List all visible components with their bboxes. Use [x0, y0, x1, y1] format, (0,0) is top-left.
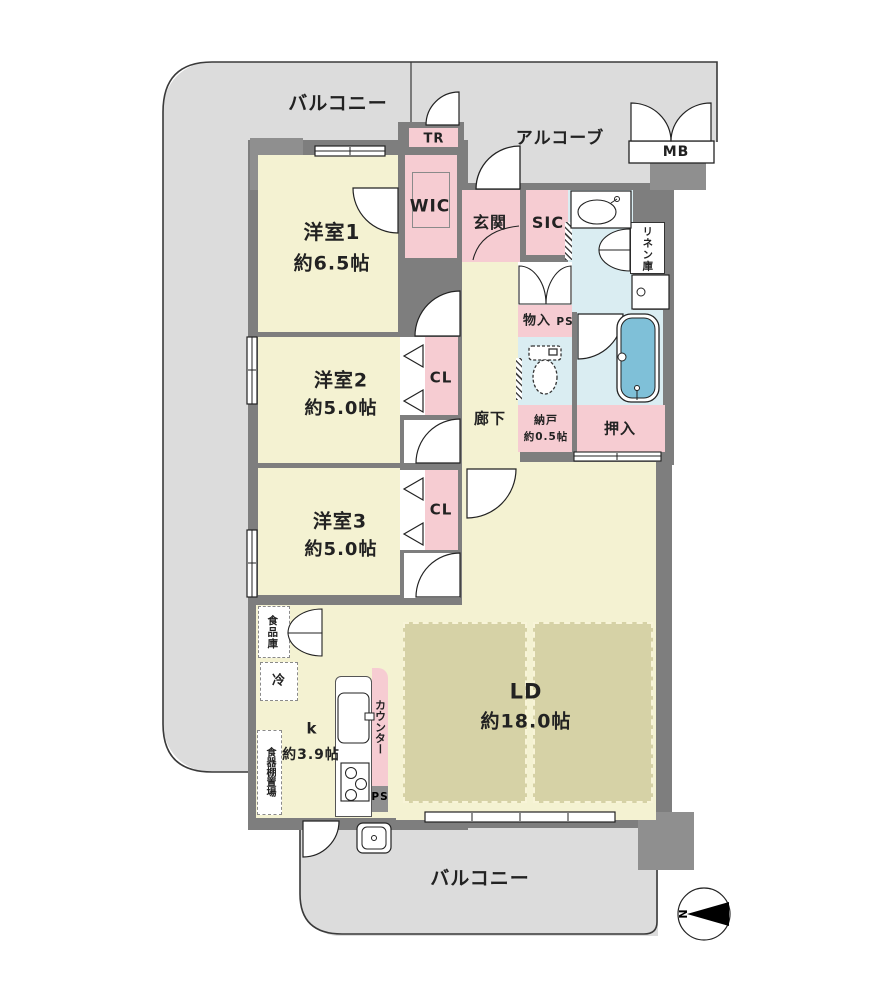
- toilet-icon: [529, 346, 561, 394]
- sic-label: SIC: [532, 215, 564, 231]
- hallway-label: 廊下: [474, 412, 506, 427]
- closet2-label: CL: [430, 371, 453, 386]
- slop-sink-icon: [357, 823, 391, 853]
- bedroom2-door: [416, 419, 460, 463]
- bedroom2-window: [247, 337, 257, 404]
- monoire-door-right: [546, 266, 571, 304]
- monoire-door-left: [519, 266, 546, 304]
- bathroom-door: [578, 314, 623, 359]
- closet2-bifold-icon: [404, 345, 423, 412]
- kitchen-size: 約3.9帖: [282, 748, 340, 762]
- balcony-bottom-label: バルコニー: [430, 870, 530, 889]
- trunk-room-label: TR: [424, 133, 445, 146]
- washbasin-icon: [571, 191, 631, 228]
- ld-window: [425, 812, 615, 822]
- oshiire-label: 押入: [604, 422, 636, 437]
- stove-icon: [341, 763, 369, 801]
- bedroom2-label: 洋室2: [314, 372, 368, 391]
- dish-shelf-label: 食器棚置場: [264, 747, 274, 797]
- closet3-label: CL: [430, 503, 453, 518]
- wic-label: WIC: [410, 199, 451, 216]
- closet3-bifold-icon: [404, 478, 423, 545]
- meter-box-label: MB: [663, 145, 690, 159]
- ld-label: LD: [510, 682, 543, 703]
- bedroom1-label: 洋室1: [304, 222, 361, 242]
- compass-north-letter: N: [676, 909, 689, 918]
- nando-label: 納戸: [534, 415, 558, 426]
- pantry-door-bottom: [288, 633, 322, 656]
- bedroom1-window: [315, 146, 385, 156]
- balcony-door: [303, 821, 339, 857]
- ld-door: [467, 469, 516, 518]
- pantry-door-top: [288, 609, 322, 633]
- kitchen-label: k: [307, 722, 318, 737]
- compass-icon: N: [676, 888, 730, 940]
- monoire-ps-label: PS: [556, 317, 573, 328]
- linen-door-bottom: [599, 250, 630, 271]
- ld-size: 約18.0帖: [481, 713, 572, 732]
- bathtub-icon: [617, 314, 659, 402]
- kitchen-sink-icon: [338, 693, 374, 743]
- monoire-label: 物入: [523, 315, 551, 328]
- pantry-label: 食品庫: [267, 615, 278, 650]
- counter-label: カウンター: [375, 700, 386, 755]
- bedroom1-size: 約6.5帖: [294, 255, 371, 274]
- linen-closet-label: リネン庫: [642, 226, 653, 272]
- balcony-top-label: バルコニー: [288, 95, 388, 114]
- oshiire-sliding-door: [574, 452, 661, 461]
- fridge-label: 冷: [272, 675, 286, 688]
- bedroom2-size: 約5.0帖: [305, 400, 378, 418]
- fixture-layer: N: [0, 0, 878, 992]
- entrance-label: 玄関: [473, 215, 507, 231]
- mb-door-left: [631, 103, 671, 141]
- bedroom1-door: [415, 291, 460, 336]
- pipe-space-kitchen-label: PS: [371, 792, 388, 803]
- alcove-label: アルコーブ: [516, 131, 604, 148]
- linen-door-top: [599, 229, 630, 250]
- bedroom3-label: 洋室3: [313, 513, 367, 532]
- bedroom3-size: 約5.0帖: [305, 541, 378, 559]
- entrance-door: [476, 146, 520, 189]
- mb-door-right: [671, 103, 711, 141]
- bedroom3-door: [416, 553, 460, 597]
- bedroom3-window: [247, 530, 257, 597]
- nando-size: 約0.5帖: [524, 432, 569, 443]
- washing-machine-icon: [632, 275, 669, 309]
- floor-plan: N バルコニー アルコーブ MB TR WIC 玄関 SIC リネン庫 洋室1 …: [0, 0, 878, 992]
- tr-door: [426, 92, 459, 125]
